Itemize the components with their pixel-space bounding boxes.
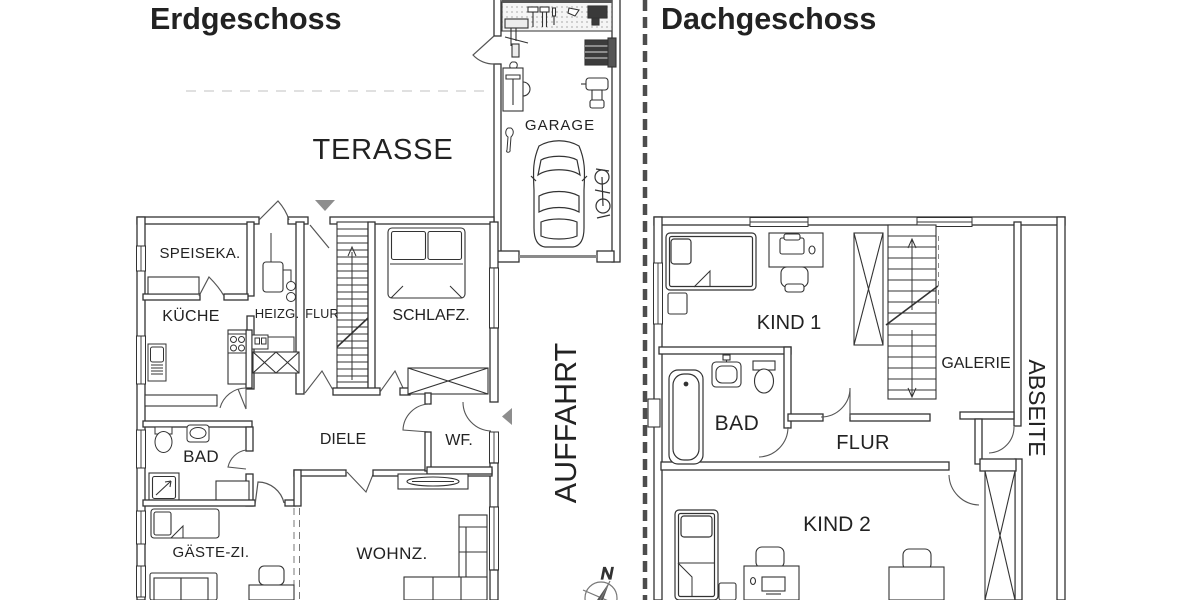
svg-text:DIELE: DIELE [320, 431, 366, 448]
svg-text:BAD: BAD [715, 412, 760, 435]
svg-text:HEIZG.: HEIZG. [255, 306, 300, 321]
svg-text:SPEISEKA.: SPEISEKA. [159, 245, 240, 262]
svg-text:GARAGE: GARAGE [525, 117, 595, 134]
svg-text:KÜCHE: KÜCHE [162, 307, 220, 325]
svg-text:Erdgeschoss: Erdgeschoss [150, 2, 342, 36]
svg-text:KIND 1: KIND 1 [757, 312, 821, 334]
svg-text:Dachgeschoss: Dachgeschoss [661, 2, 876, 36]
svg-text:FLUR: FLUR [305, 307, 338, 321]
svg-text:SCHLAFZ.: SCHLAFZ. [392, 307, 469, 324]
svg-text:AUFFAHRT: AUFFAHRT [549, 343, 583, 503]
svg-text:FLUR: FLUR [836, 432, 889, 454]
svg-text:TERASSE: TERASSE [313, 134, 454, 166]
svg-text:WF.: WF. [445, 432, 473, 449]
svg-text:WOHNZ.: WOHNZ. [356, 544, 427, 563]
svg-text:N: N [601, 564, 614, 583]
svg-text:KIND 2: KIND 2 [803, 513, 871, 536]
svg-text:GALERIE: GALERIE [941, 355, 1010, 372]
svg-text:ABSEITE: ABSEITE [1024, 359, 1050, 456]
svg-text:GÄSTE-ZI.: GÄSTE-ZI. [173, 544, 250, 561]
svg-text:BAD: BAD [183, 447, 219, 466]
